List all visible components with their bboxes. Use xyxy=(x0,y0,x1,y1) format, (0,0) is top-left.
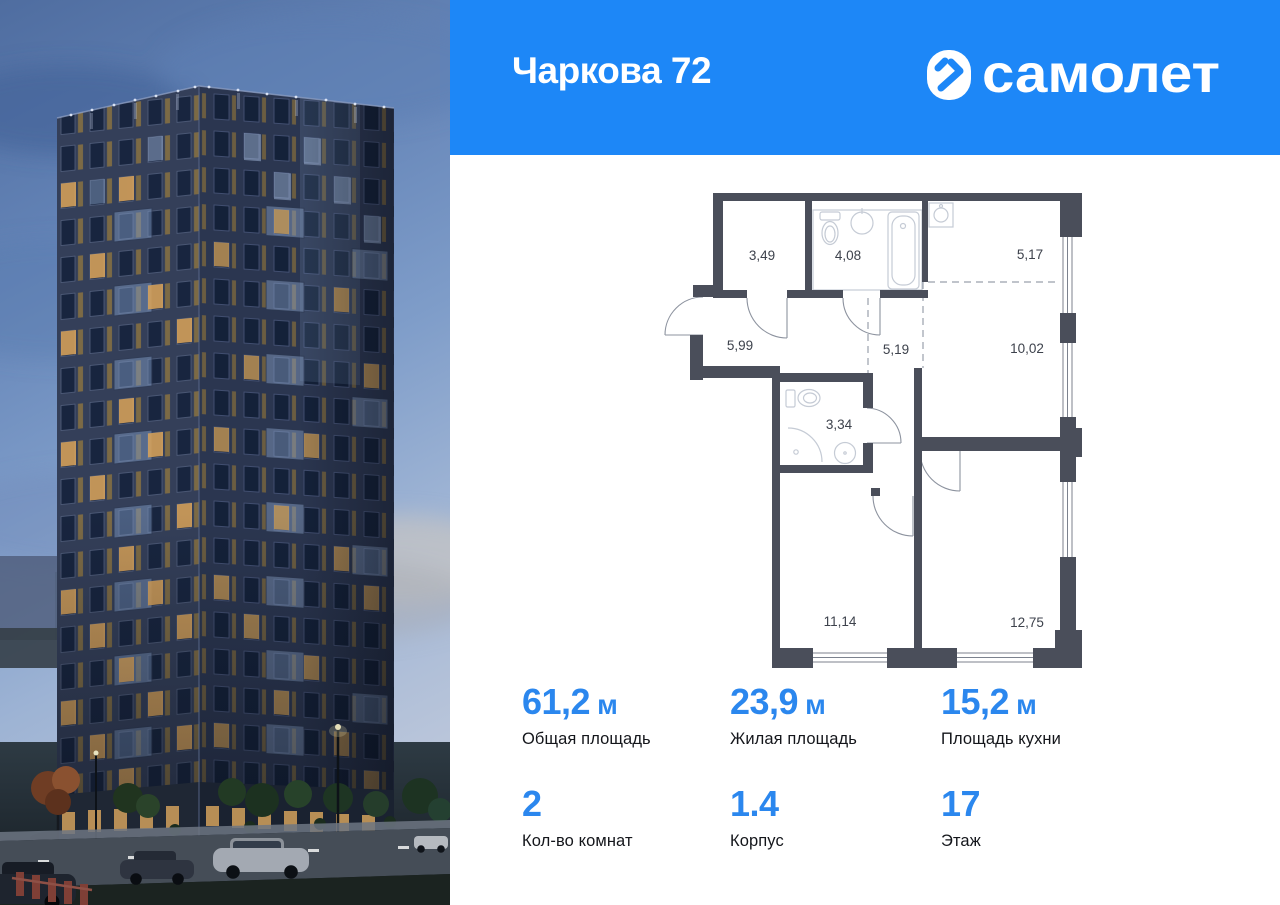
stat-kitchen-area-label: Площадь кухни xyxy=(941,730,1061,749)
stat-total-area: 61,2м Общая площадь xyxy=(522,684,651,749)
stat-rooms: 2 Кол-во комнат xyxy=(522,786,633,851)
room-area-label: 12,75 xyxy=(1010,615,1044,630)
listing-card: Чаркова 72 самолет xyxy=(0,0,1280,905)
samolet-logo: самолет xyxy=(927,48,1223,102)
room-area-label: 3,49 xyxy=(749,248,775,263)
stat-living-area-label: Жилая площадь xyxy=(730,730,857,749)
stat-building-value: 1.4 xyxy=(730,786,784,822)
stat-rooms-label: Кол-во комнат xyxy=(522,832,633,851)
stat-living-area-value: 23,9м xyxy=(730,684,857,720)
stat-total-area-label: Общая площадь xyxy=(522,730,651,749)
room-area-label: 5,99 xyxy=(727,338,753,353)
room-area-label: 5,17 xyxy=(1017,247,1043,262)
stat-floor-label: Этаж xyxy=(941,832,981,851)
building-photo xyxy=(0,0,450,905)
room-area-label: 10,02 xyxy=(1010,341,1044,356)
stat-kitchen-area: 15,2м Площадь кухни xyxy=(941,684,1061,749)
stat-kitchen-area-value: 15,2м xyxy=(941,684,1061,720)
stat-living-area: 23,9м Жилая площадь xyxy=(730,684,857,749)
samolet-wordmark: самолет xyxy=(981,48,1223,102)
stat-rooms-value: 2 xyxy=(522,786,633,822)
building-photo-art xyxy=(0,0,450,905)
project-header: Чаркова 72 самолет xyxy=(450,0,1280,155)
stat-building-label: Корпус xyxy=(730,832,784,851)
details-panel: Чаркова 72 самолет xyxy=(450,0,1280,905)
stat-floor-value: 17 xyxy=(941,786,981,822)
samolet-wordmark-text: самолет xyxy=(982,48,1220,102)
room-area-label: 5,19 xyxy=(883,342,909,357)
room-area-label: 11,14 xyxy=(824,614,857,629)
room-area-label: 4,08 xyxy=(835,248,861,263)
stat-building: 1.4 Корпус xyxy=(730,786,784,851)
stat-total-area-value: 61,2м xyxy=(522,684,651,720)
stat-floor: 17 Этаж xyxy=(941,786,981,851)
page-title: Чаркова 72 xyxy=(512,50,711,92)
samolet-logo-icon xyxy=(927,50,971,100)
floor-plan: 3,49 4,08 5,17 5,99 5,19 10,02 3,34 11,1… xyxy=(650,190,1086,670)
room-area-label: 3,34 xyxy=(826,417,853,432)
